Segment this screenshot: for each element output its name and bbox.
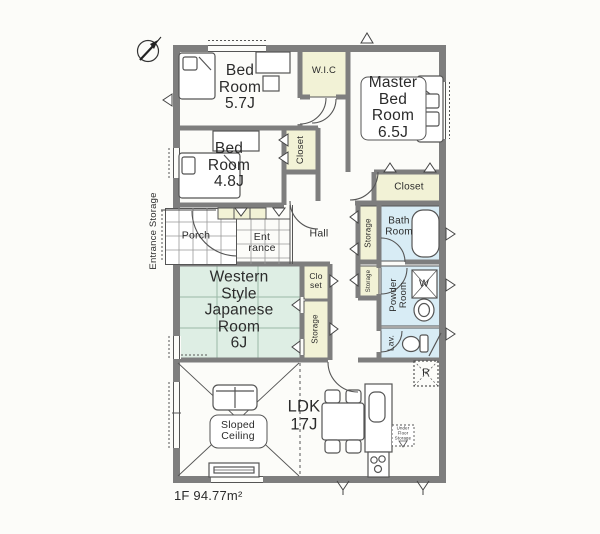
label-sloped-ceiling: Sloped Ceiling [221, 420, 255, 442]
stove-icon [368, 452, 389, 477]
room-label-lav: Lav. [386, 335, 395, 351]
room-label-closet-hall: Clo set [309, 272, 322, 290]
room-label-wic: W.I.C [312, 66, 336, 76]
room-label-bed-room-5-7: Bed Room 5.7J [219, 63, 261, 113]
compass-north-icon [138, 37, 162, 62]
room-label-japanese-room: Western Style Japanese Room 6J [205, 270, 274, 353]
room-label-closet-master: Closet [394, 183, 424, 194]
room-label-powder-room: Powder Room [389, 278, 409, 311]
room-label-master-bed-room: Master Bed Room 6.5J [369, 75, 418, 141]
washer-letter: W [419, 278, 429, 289]
room-label-hall: Hall [310, 228, 329, 239]
fridge-letter: R [422, 367, 430, 378]
room-label-entrance: Ent rance [248, 232, 275, 254]
floor-plan-drawing [0, 0, 600, 534]
kitchen-counter-icon [365, 384, 392, 452]
tv-board-icon [209, 463, 259, 477]
floor-area-text: 1F 94.77m² [174, 489, 242, 503]
room-label-storage-bath: Storage [365, 218, 374, 247]
room-label-closet-48: Closet [296, 136, 306, 164]
room-label-bed-room-4-8: Bed Room 4.8J [208, 141, 250, 191]
floor-plan-canvas: Bed Room 5.7J W.I.C Master Bed Room 6.5J… [0, 0, 600, 534]
sofa-icon [213, 385, 257, 410]
desk-icon [256, 52, 290, 91]
room-label-ldk: LDK 17J [288, 398, 321, 433]
bed-icon [179, 53, 215, 99]
bathtub-icon [412, 210, 439, 257]
room-label-porch: Porch [182, 230, 210, 241]
label-under-floor-storage: Under Floor Storage [395, 427, 411, 442]
label-entrance-storage: Entrance Storage [149, 192, 159, 269]
room-label-storage-hall: Storage [312, 314, 321, 343]
dining-set-icon [322, 390, 364, 453]
room-label-bath-room: Bath Room [385, 216, 412, 237]
room-label-storage-powder: Storage [366, 270, 372, 292]
sink-icon [414, 299, 434, 321]
